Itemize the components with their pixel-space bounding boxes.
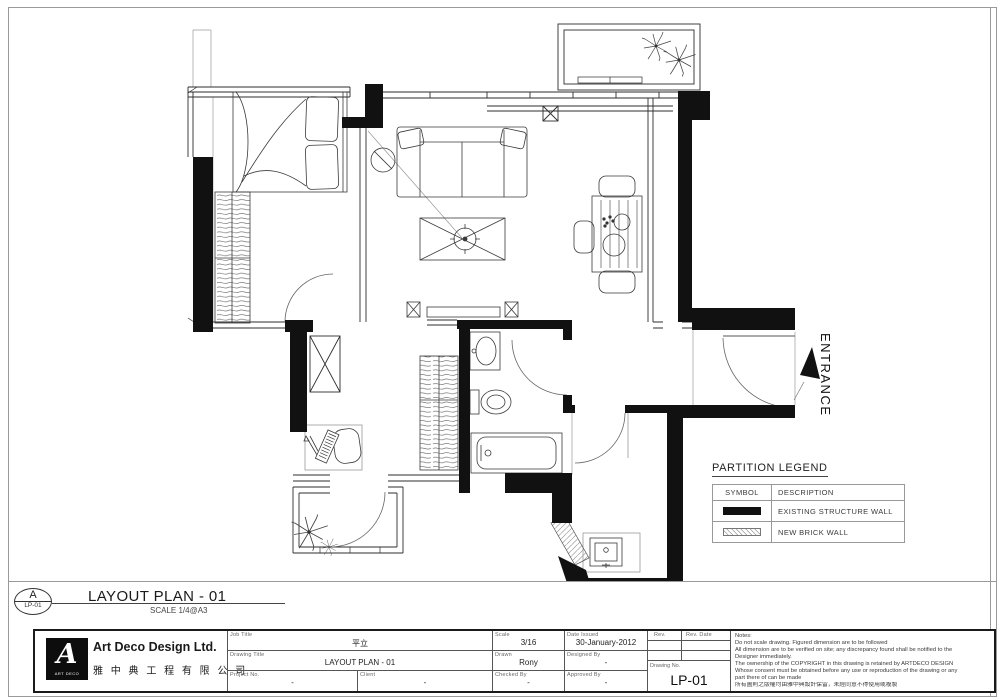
dining-area [574,176,642,293]
toilet [470,390,511,414]
detail-callout: A LP-01 [14,588,52,615]
side-stool [371,148,395,172]
company-block: A ART DECO Art Deco Design Ltd. 雅 中 典 工 … [35,631,227,691]
study-wardrobe [420,356,458,470]
job-title-cell: Job Title 平立 [227,631,492,651]
approved-by-cell: Approved By - [564,671,647,691]
revision-table: Rev. Rev. Date [647,631,730,661]
detail-ref: LP-01 [15,601,51,610]
drawing-title-cell: Drawing Title LAYOUT PLAN - 01 [227,651,492,671]
new-brick-wall-swatch [723,528,761,536]
entrance-door-arc [723,338,795,408]
bedroom-door-arc [285,274,333,322]
title-block: A ART DECO Art Deco Design Ltd. 雅 中 典 工 … [33,629,996,693]
company-logo: A ART DECO [46,638,88,680]
dining-table [592,196,642,272]
project-no-cell: Project No. - [227,671,357,691]
existing-structure-wall-swatch [723,507,761,515]
bathroom [470,332,567,473]
tv-console [407,302,518,317]
terrace-door-arc [330,492,385,547]
dining-chair-top [599,176,635,197]
kitchen-door-arc [575,413,625,463]
legend-description-header: DESCRIPTION [772,485,905,501]
legend-row-description: NEW BRICK WALL [772,522,905,543]
scale-cell: Scale 3/16 [492,631,564,651]
detail-letter: A [15,589,51,601]
drawn-cell: Drawn Rony [492,651,564,671]
plant-icon [292,515,328,551]
company-name-en: Art Deco Design Ltd. [93,640,217,654]
bathroom-door-arc [512,340,567,395]
kitchen [575,413,640,572]
notes-block: Notes: Do not scale drawing. Figured dim… [730,631,994,691]
drawing-sheet: ENTRANCE [0,0,1000,700]
legend-row: NEW BRICK WALL [713,522,905,543]
entrance-arrow-icon [800,347,820,379]
keyboard [315,430,339,463]
bedroom [188,87,366,328]
legend-symbol-header: SYMBOL [713,485,772,501]
logo-caption: ART DECO [46,671,88,676]
bedroom-wardrobe [215,192,250,323]
plan-scale: SCALE 1/4@A3 [150,606,207,615]
drawing-no-cell: Drawing No. LP-01 [647,661,730,691]
planter-shelf [578,77,642,83]
date-issued-cell: Date Issued 30-January-2012 [564,631,647,651]
logo-letter: A [46,638,88,671]
dining-chair-left [574,221,594,253]
bathtub [471,433,562,473]
desk [304,425,362,470]
study-room [293,336,460,481]
partition-legend: PARTITION LEGEND SYMBOL DESCRIPTION EXIS… [712,458,905,543]
plan-title: LAYOUT PLAN - 01 [88,588,226,605]
bathroom-sink [470,332,500,370]
legend-title: PARTITION LEGEND [712,462,828,477]
plant-icon [664,45,696,77]
terrace [292,487,404,556]
closet-box [310,336,340,392]
drawing-number: LP-01 [648,672,730,688]
entrance: ENTRANCE [723,333,833,417]
walls-existing [193,84,795,581]
legend-row: EXISTING STRUCTURE WALL [713,501,905,522]
sheet-border-bottom [8,696,996,697]
legend-row-description: EXISTING STRUCTURE WALL [772,501,905,522]
designed-by-cell: Designed By - [564,651,647,671]
balcony [558,24,700,90]
company-name-zh: 雅 中 典 工 程 有 限 公 司 [93,662,248,677]
entrance-label: ENTRANCE [818,333,833,417]
client-cell: Client - [357,671,492,691]
kitchen-sink [590,538,622,568]
living-room [371,92,692,328]
checked-by-cell: Checked By - [492,671,564,691]
column-box [543,106,558,121]
drawing-area-divider [8,581,996,582]
plant-icon [642,32,671,61]
bed [233,92,347,192]
dining-chair-bottom [599,271,635,293]
coffee-table [420,218,505,260]
